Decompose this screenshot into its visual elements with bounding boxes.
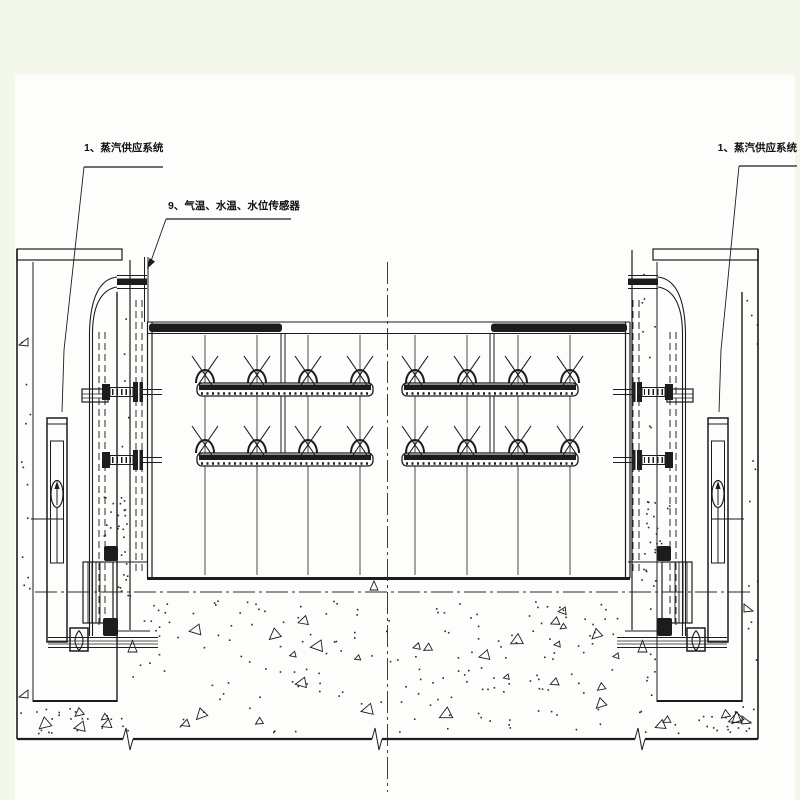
drawing-sheet <box>15 75 795 800</box>
engineering-section-drawing: 1、蒸汽供应系统 9、气温、水温、水位传感器 1、蒸汽供应系统 <box>0 0 800 800</box>
steam-header-pipe-right <box>491 324 627 333</box>
label-steam-supply-right: 1、蒸汽供应系统 <box>718 141 798 154</box>
drawing-canvas: 1、蒸汽供应系统 9、气温、水温、水位传感器 1、蒸汽供应系统 <box>0 0 800 800</box>
steam-header-pipe-left <box>149 324 282 333</box>
valve-fitting <box>104 546 118 561</box>
valve-fitting <box>103 618 118 636</box>
label-sensors: 9、气温、水温、水位传感器 <box>168 199 300 212</box>
label-steam-supply-left: 1、蒸汽供应系统 <box>84 141 164 154</box>
pipe-connection-flange <box>117 279 147 286</box>
